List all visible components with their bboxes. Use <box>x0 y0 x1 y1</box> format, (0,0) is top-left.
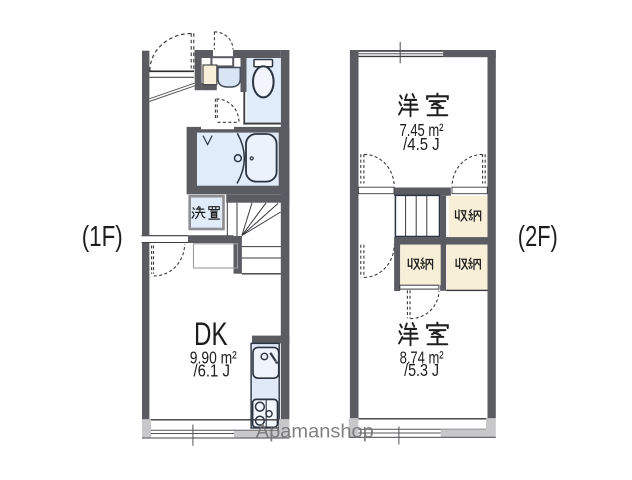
svg-text:/6.1 J: /6.1 J <box>193 361 230 381</box>
svg-text:(1F): (1F) <box>82 221 123 253</box>
svg-text:/4.5 J: /4.5 J <box>403 134 440 154</box>
svg-text:Apamanshop: Apamanshop <box>256 422 374 443</box>
svg-text:(2F): (2F) <box>518 221 558 253</box>
svg-text:/5.3 J: /5.3 J <box>404 360 439 380</box>
